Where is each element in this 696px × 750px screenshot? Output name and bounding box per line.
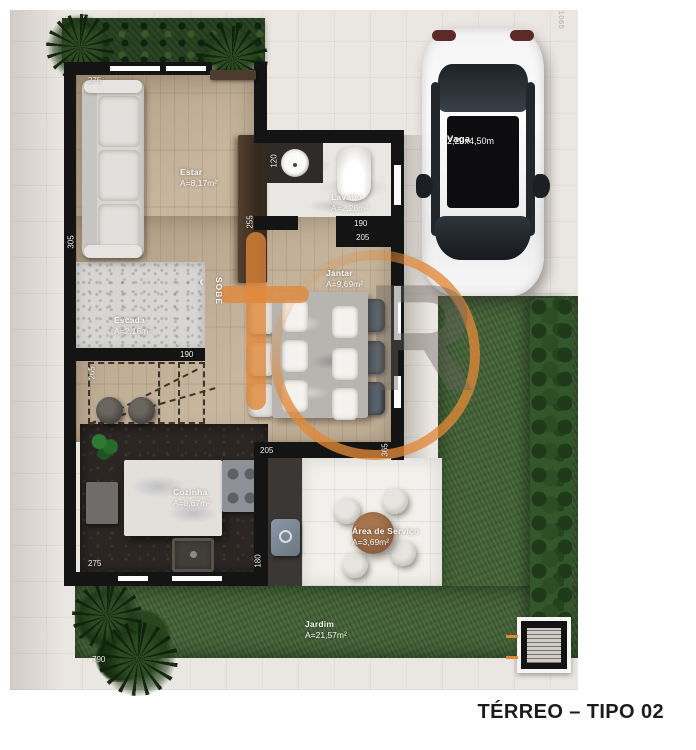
patio-chair (342, 552, 368, 578)
escada-area: A=2,16m² (114, 325, 151, 336)
window-estar-north-1 (110, 66, 160, 71)
window-lavabo-east (394, 165, 401, 205)
washer-door (279, 530, 292, 543)
escada-landing (76, 262, 205, 350)
stool (96, 397, 123, 424)
jardim-area: A=21,57m² (305, 629, 347, 640)
plan-title: TÉRREO – TIPO 02 (478, 701, 664, 724)
stool (128, 397, 155, 424)
grill-grid (527, 628, 561, 663)
patio-chair (382, 488, 408, 514)
floor-plan-canvas: Vaga 2,20x4,50m R Estar A=8,17m² Lavabo … (0, 0, 696, 750)
connection-tick (506, 635, 518, 638)
jardim-name: Jardim (305, 619, 334, 630)
kitchen-plant (88, 428, 120, 462)
car-side-window (526, 82, 535, 236)
watermark-t-icon (246, 232, 266, 410)
stair-tread-line (178, 362, 180, 424)
entry-door-leaf (210, 70, 256, 80)
wall-corner-band (336, 230, 404, 247)
lavabo-sink-drain (293, 163, 297, 167)
wall-lavabo-south-left (254, 216, 298, 230)
sofa-armrest (84, 245, 142, 258)
sofa (82, 80, 144, 258)
dim-jantar-top: 205 (356, 233, 369, 242)
wall-lavabo-north (254, 130, 404, 143)
dim-stairs-width: 190 (180, 350, 193, 359)
parking-size: 2,20x4,50m (447, 136, 494, 146)
washing-machine (271, 519, 300, 556)
sobe-text: SOBE (214, 277, 224, 305)
lavabo-area: A=2,28m² (331, 202, 368, 213)
sofa-backrest (82, 88, 97, 250)
patio-chair (390, 540, 416, 566)
kitchen-cabinet (86, 482, 118, 524)
wall-west (64, 62, 76, 586)
car-sunroof (447, 116, 519, 208)
sofa-cushion (98, 96, 140, 147)
dim-cozinha-bottom: 275 (88, 559, 101, 568)
left-walkway-shadow (10, 10, 72, 690)
lavabo-name: Lavabo (331, 192, 362, 203)
dim-estar-top: 275 (88, 76, 101, 85)
car-taillight (432, 30, 456, 41)
servico-name: Área de Serviço (352, 526, 419, 537)
car-mirror (533, 174, 550, 198)
window-estar-north-2 (166, 66, 206, 71)
estar-name: Estar (180, 167, 202, 178)
estar-area: A=8,17m² (180, 177, 217, 188)
connection-tick (506, 656, 518, 659)
escada-name: Escada (114, 315, 145, 326)
faucet (190, 551, 197, 558)
car-taillight (510, 30, 534, 41)
car-side-window (431, 82, 440, 236)
grill-unit (517, 617, 571, 673)
dim-jardim-left: 790 (92, 655, 105, 664)
hedge-right (530, 298, 572, 656)
door-cozinha-south (172, 576, 222, 581)
stairs-arrow-icon: ‹ (199, 273, 204, 290)
cozinha-area: A=8,67m² (173, 497, 210, 508)
servico-area: A=3,69m² (352, 536, 389, 547)
jantar-name: Jantar (326, 268, 353, 279)
wall-cozinha-south (64, 572, 268, 586)
stair-tread-line (158, 362, 160, 424)
dim-lavabo-bottom: 190 (354, 219, 367, 228)
car-rear-window (438, 64, 528, 112)
kitchen-sink (172, 538, 214, 572)
window-cozinha-south (118, 576, 148, 581)
car-mirror (416, 174, 433, 198)
watermark-t-crossbar-icon (219, 286, 309, 303)
palm-plant-bottom-2 (98, 622, 178, 696)
cozinha-name: Cozinha (173, 487, 207, 498)
jantar-area: A=9,69m² (326, 278, 363, 289)
sofa-cushion (98, 150, 140, 201)
watermark-letter: R (366, 258, 476, 418)
dim-jantar-bottom: 205 (260, 446, 273, 455)
wall-lavabo-south-right (336, 216, 404, 230)
